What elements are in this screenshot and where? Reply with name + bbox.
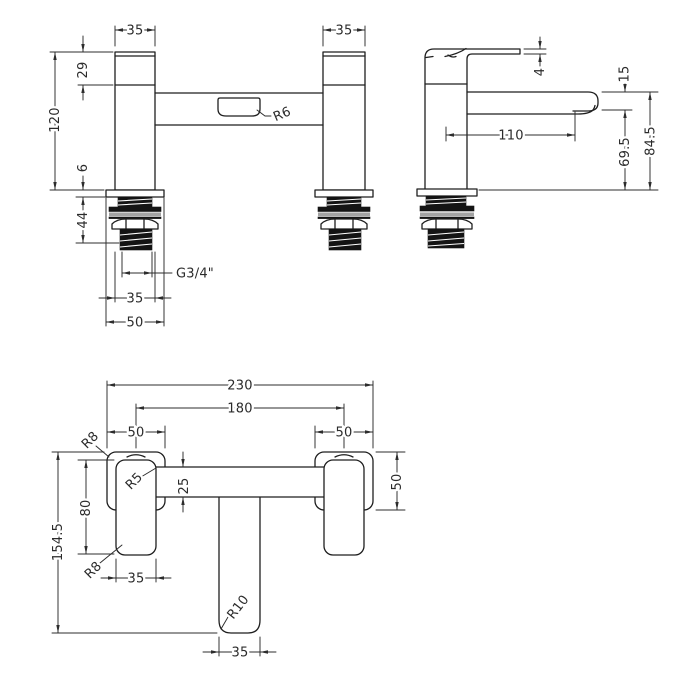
side-shank: [420, 196, 474, 248]
dim-front-left-body-width: 35: [127, 24, 144, 39]
dim-plan-lever-width: 35: [128, 572, 145, 587]
front-right-base-plate: [315, 190, 373, 197]
dim-plan-spout-width: 35: [232, 646, 249, 661]
front-geometry: [106, 52, 373, 250]
front-spout-slot: [218, 98, 260, 116]
side-base-plate: [417, 189, 477, 196]
dim-side-lever-thickness: 4: [533, 68, 548, 76]
plan-view: 230 180 50 50 25 80 154.5 35 35 50 R8 R5…: [51, 379, 405, 661]
dim-front-shank-length: 44: [76, 212, 91, 229]
hex-nut: [321, 219, 367, 229]
dim-side-overall-height: 84.5: [644, 126, 659, 156]
front-left-base-plate: [106, 190, 164, 197]
dim-plan-base-depth: 50: [390, 474, 405, 491]
front-left-body: [115, 52, 155, 190]
front-left-shank: [109, 197, 161, 250]
plan-right-lever: [324, 460, 364, 555]
dim-plan-overall-depth: 154.5: [51, 523, 66, 561]
front-dimensions: 35 35 29 120 6 44 G3/4" 35 50 R6: [48, 24, 365, 331]
dim-front-cap-height: 29: [76, 62, 91, 79]
front-right-shank: [318, 197, 370, 250]
dim-plan-overall-width: 230: [227, 379, 252, 394]
front-view: 35 35 29 120 6 44 G3/4" 35 50 R6: [48, 24, 373, 331]
dim-front-right-body-width: 35: [336, 24, 353, 39]
side-handle-curve: [445, 49, 466, 58]
dim-plan-lever-length: 80: [79, 500, 94, 517]
dim-side-spout-reach: 110: [498, 129, 523, 144]
dim-plan-hole-centres: 180: [227, 402, 252, 417]
side-view: 4 15 110 69.5 84.5: [417, 37, 659, 248]
side-spout: [467, 92, 598, 111]
dim-side-height-under-spout: 69.5: [618, 137, 633, 167]
hex-nut: [422, 219, 472, 229]
drawing-sheet: 35 35 29 120 6 44 G3/4" 35 50 R6: [0, 0, 700, 700]
dim-plan-lever-corner-radius: R8: [82, 559, 105, 582]
dim-front-thread-spec: G3/4": [176, 267, 214, 282]
side-body: [425, 49, 520, 189]
front-right-body: [323, 52, 365, 190]
dim-plan-left-base-width: 50: [128, 426, 145, 441]
technical-drawing-canvas: 35 35 29 120 6 44 G3/4" 35 50 R6: [0, 0, 700, 700]
dim-plan-right-base-width: 50: [336, 426, 353, 441]
dim-front-slot-radius: R6: [271, 104, 293, 125]
dim-plan-bar-depth: 25: [177, 478, 192, 495]
dim-front-overall-height: 120: [48, 107, 63, 132]
hex-nut: [112, 219, 158, 229]
dim-front-deck-thickness: 6: [76, 164, 91, 172]
dim-side-spout-end-height: 15: [618, 66, 633, 83]
side-geometry: [417, 49, 598, 249]
dim-front-base-width: 50: [127, 316, 144, 331]
dim-front-shank-width: 35: [127, 292, 144, 307]
